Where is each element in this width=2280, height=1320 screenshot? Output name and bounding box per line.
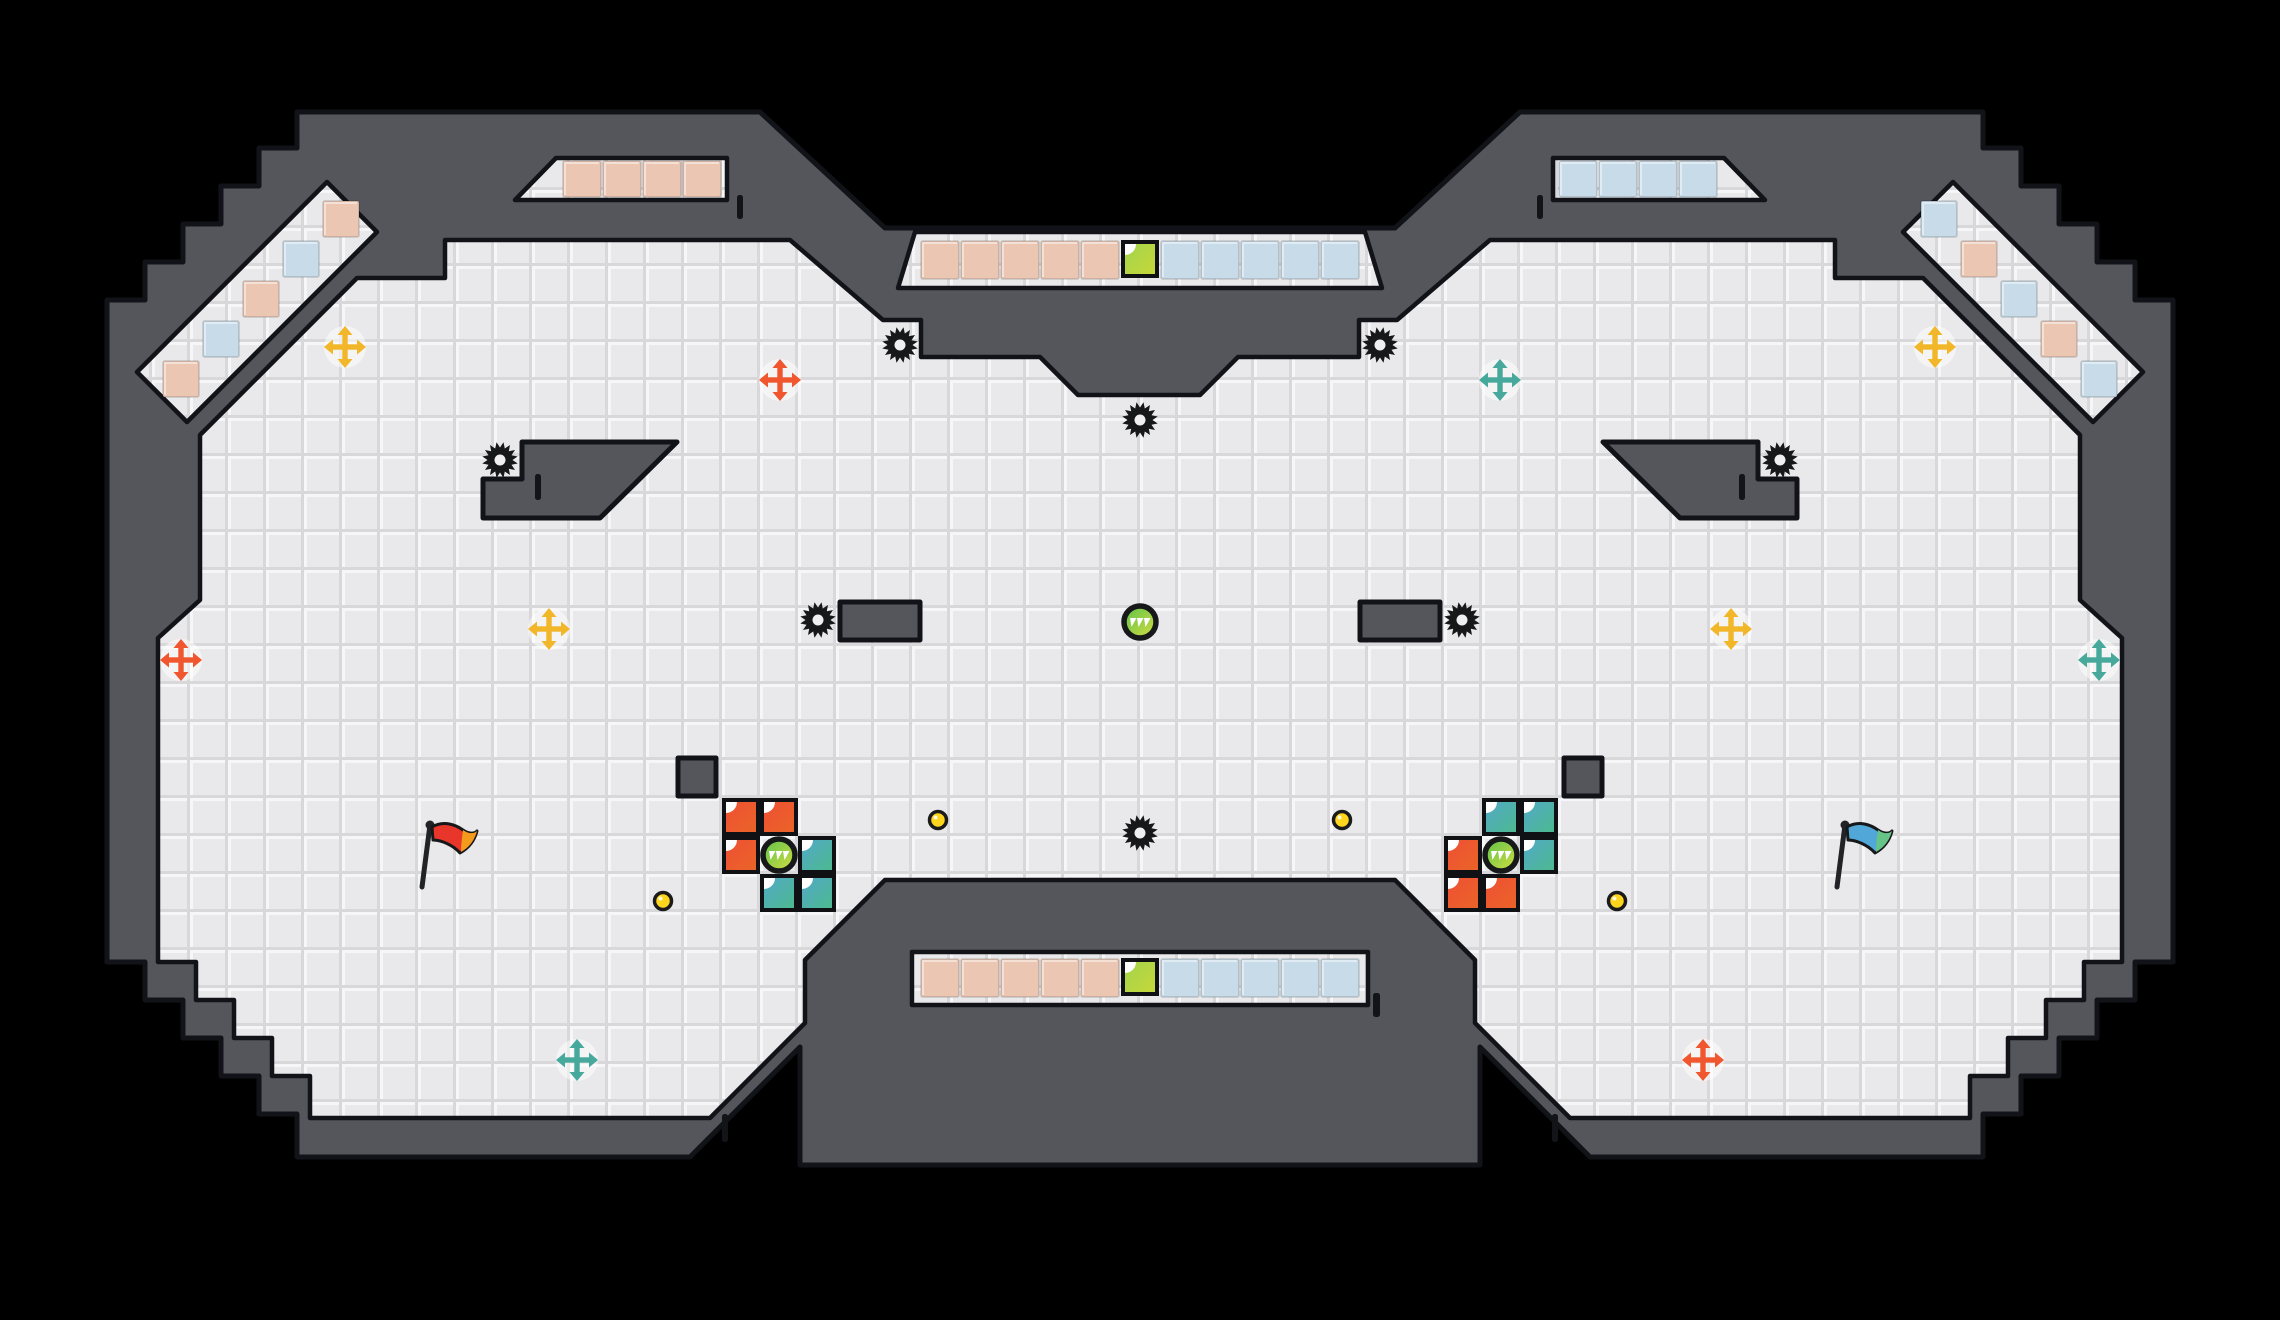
block-right <box>1360 602 1440 640</box>
door-marker <box>1739 474 1745 500</box>
boost-orange-icon <box>759 359 801 401</box>
door-marker <box>1537 195 1543 219</box>
gate-tile-teal <box>1522 800 1556 834</box>
gate-tile-teal <box>1522 838 1556 872</box>
gate-tile-red <box>724 800 758 834</box>
team-tile-blue <box>1921 201 1957 237</box>
boost-yellow-icon <box>1914 326 1956 368</box>
boost-teal-icon <box>2078 639 2120 681</box>
team-tile-blue <box>203 321 239 357</box>
gate-tile-teal <box>1484 800 1518 834</box>
boost-orange-icon <box>160 639 202 681</box>
team-tile-blue <box>1679 161 1717 197</box>
gate-tile-red <box>762 800 796 834</box>
game-stage <box>0 0 2280 1320</box>
door-marker <box>737 195 743 219</box>
gold-dot <box>1609 893 1626 910</box>
banner-tile-blue <box>1281 241 1319 279</box>
door-marker <box>1373 993 1380 1017</box>
team-tile-blue <box>2081 361 2117 397</box>
banner-tile-blue <box>1321 959 1359 997</box>
powerup-icon <box>1124 606 1156 638</box>
gate-tile-green <box>1123 960 1157 994</box>
team-tile-red <box>563 161 601 197</box>
gate-tile-teal <box>762 876 796 910</box>
banner-tile-blue <box>1321 241 1359 279</box>
game-map <box>0 0 2280 1320</box>
boost-orange-icon <box>1682 1039 1724 1081</box>
boost-teal-icon <box>556 1039 598 1081</box>
boost-yellow-icon <box>1710 608 1752 650</box>
team-tile-red <box>1961 241 1997 277</box>
banner-tile-blue <box>1201 959 1239 997</box>
boost-teal-icon <box>1479 359 1521 401</box>
gate-tile-green <box>1123 242 1157 276</box>
team-tile-blue <box>1559 161 1597 197</box>
team-tile-red <box>243 281 279 317</box>
banner-tile-red <box>1001 959 1039 997</box>
team-tile-red <box>163 361 199 397</box>
banner-tile-red <box>1001 241 1039 279</box>
gate-tile-red <box>1484 876 1518 910</box>
team-tile-red <box>603 161 641 197</box>
banner-tile-blue <box>1161 241 1199 279</box>
boost-yellow-icon <box>324 326 366 368</box>
team-tile-red <box>643 161 681 197</box>
banner-tile-red <box>1041 959 1079 997</box>
banner-tile-red <box>961 959 999 997</box>
door-marker <box>535 474 541 500</box>
cube-right <box>1564 758 1602 796</box>
gold-dot <box>1334 812 1351 829</box>
banner-tile-blue <box>1201 241 1239 279</box>
team-tile-blue <box>1599 161 1637 197</box>
door-marker <box>1552 1114 1558 1142</box>
team-tile-red <box>683 161 721 197</box>
gate-tile-red <box>1446 876 1480 910</box>
banner-tile-red <box>1041 241 1079 279</box>
team-tile-blue <box>1639 161 1677 197</box>
banner-tile-red <box>921 959 959 997</box>
team-tile-red <box>323 201 359 237</box>
cube-left <box>678 758 716 796</box>
door-marker <box>722 1114 728 1142</box>
gold-dot <box>930 812 947 829</box>
gold-dot <box>655 893 672 910</box>
banner-tile-blue <box>1281 959 1319 997</box>
team-tile-blue <box>2001 281 2037 317</box>
team-tile-red <box>2041 321 2077 357</box>
team-tile-blue <box>283 241 319 277</box>
gate-tile-teal <box>800 876 834 910</box>
banner-tile-red <box>921 241 959 279</box>
gate-tile-red <box>1446 838 1480 872</box>
gate-tile-red <box>724 838 758 872</box>
banner-tile-red <box>961 241 999 279</box>
powerup-icon <box>1485 839 1517 871</box>
banner-tile-blue <box>1161 959 1199 997</box>
powerup-icon <box>763 839 795 871</box>
gate-tile-teal <box>800 838 834 872</box>
banner-tile-red <box>1081 241 1119 279</box>
banner-tile-blue <box>1241 241 1279 279</box>
boost-yellow-icon <box>528 608 570 650</box>
banner-tile-red <box>1081 959 1119 997</box>
block-left <box>840 602 920 640</box>
banner-tile-blue <box>1241 959 1279 997</box>
